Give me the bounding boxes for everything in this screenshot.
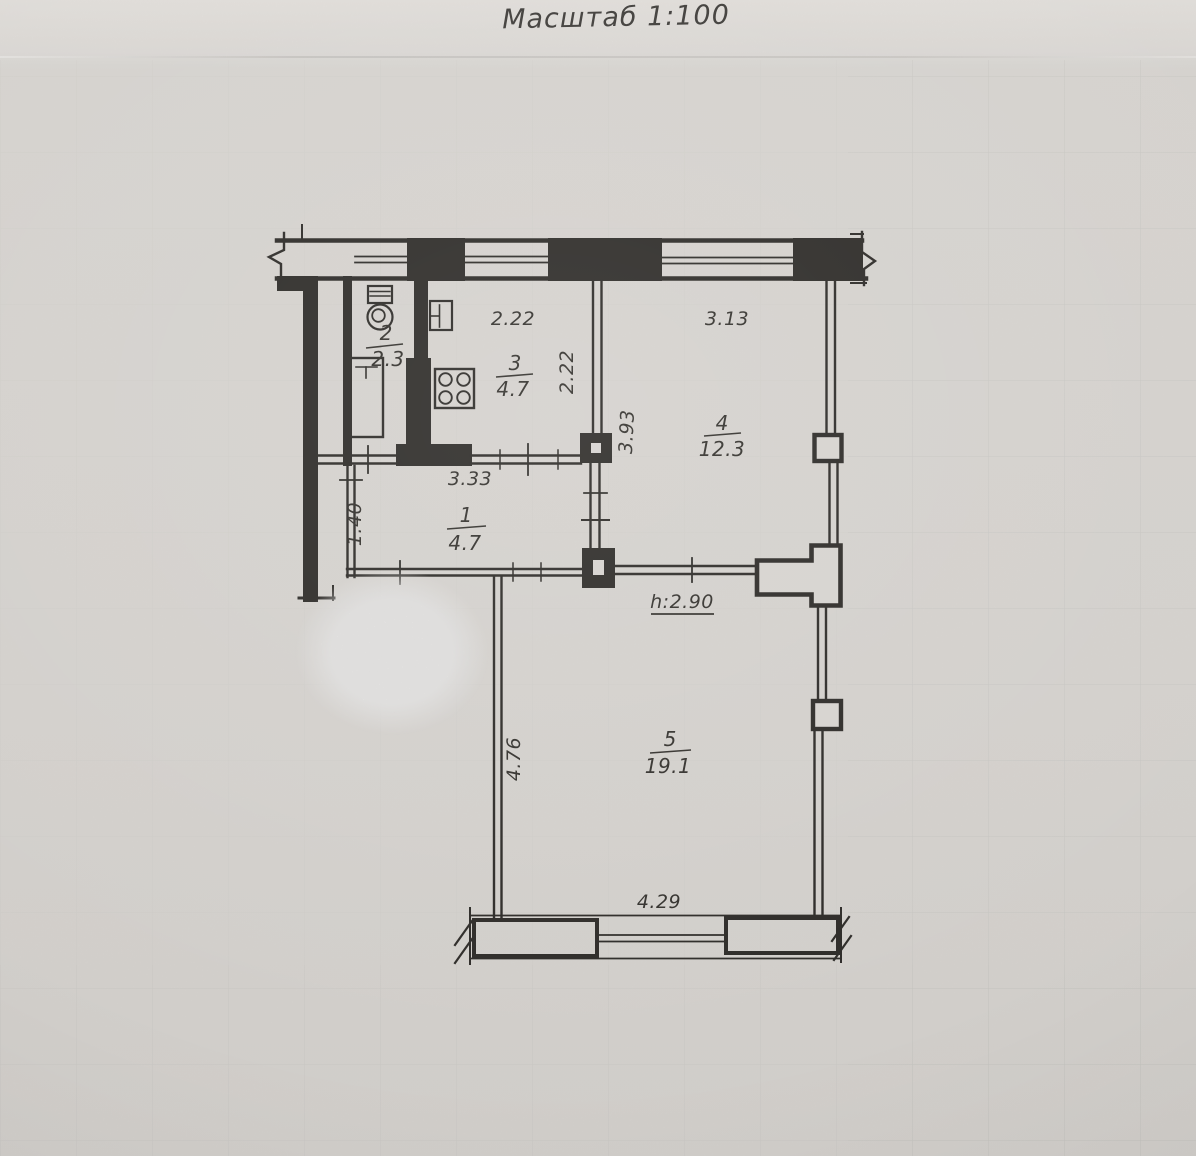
svg-text:2.3: 2.3 [371, 347, 404, 371]
svg-text:4.7: 4.7 [496, 377, 529, 401]
svg-text:5: 5 [664, 727, 677, 751]
dim-hallway-depth: 1.40 [344, 502, 366, 546]
photographed-floor-plan-sheet: Масштаб 1:100 [0, 0, 1196, 1156]
dim-top-window-left: 2.22 [491, 308, 535, 330]
dim-hallway-width: 3.33 [448, 468, 492, 490]
svg-text:4.7: 4.7 [448, 531, 481, 555]
dim-room5-width: 4.29 [637, 891, 681, 913]
ceiling-height-note: h:2.90 [650, 591, 714, 613]
svg-text:19.1: 19.1 [645, 754, 692, 778]
dim-top-window-right: 3.13 [705, 308, 749, 330]
dim-room5-depth: 4.76 [503, 737, 525, 781]
svg-text:12.3: 12.3 [699, 437, 746, 461]
dim-room4-depth: 3.93 [615, 409, 639, 454]
wall-pier [548, 238, 662, 281]
dim-kitchen-depth: 2.22 [556, 350, 578, 394]
correction-blob [294, 564, 492, 742]
wall-pier [407, 238, 465, 281]
svg-text:1: 1 [460, 503, 473, 527]
floor-plan: 2.22 3.13 2.22 3.93 3.33 1.40 h:2.90 4.7… [0, 0, 1196, 1156]
svg-text:3: 3 [509, 351, 522, 375]
wall-pier [815, 435, 842, 461]
wall-pier [793, 238, 863, 281]
svg-text:4: 4 [716, 411, 729, 435]
wall-pier [813, 701, 841, 729]
svg-text:2: 2 [380, 321, 393, 345]
